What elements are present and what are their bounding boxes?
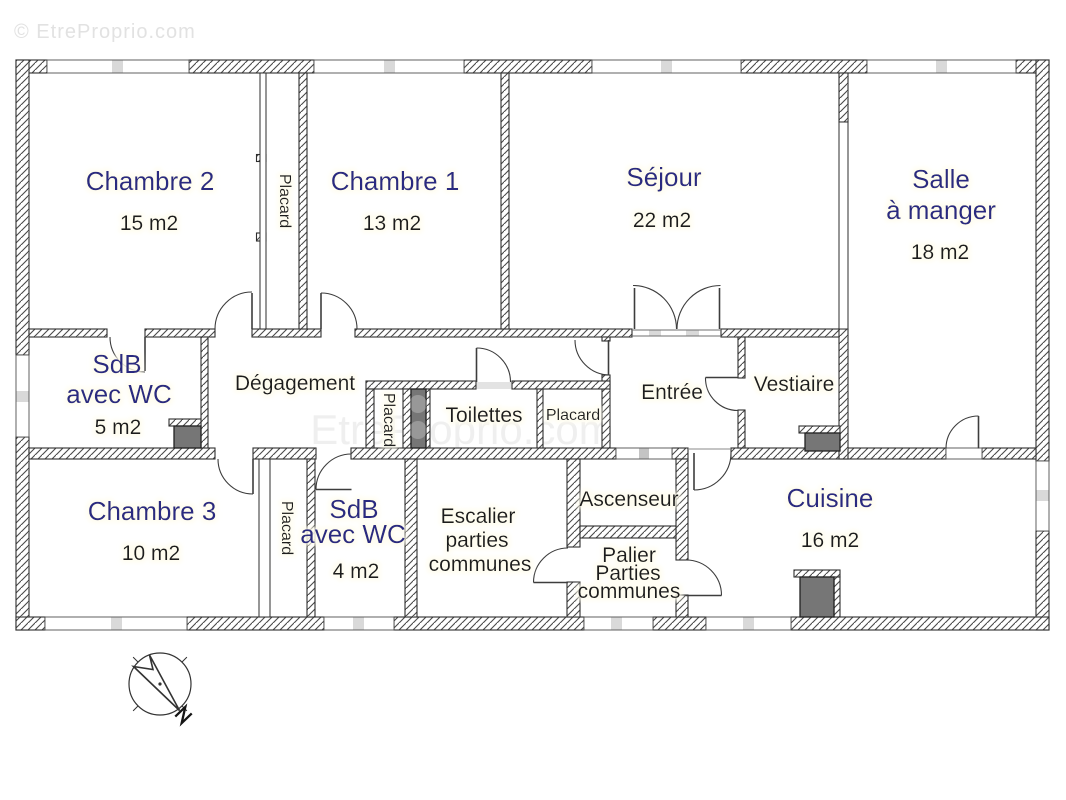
svg-text:4 m2: 4 m2 xyxy=(333,560,380,583)
svg-text:Placard: Placard xyxy=(276,174,293,228)
svg-text:avec WC: avec WC xyxy=(66,379,171,409)
svg-text:communes: communes xyxy=(578,580,681,603)
svg-text:Dégagement: Dégagement xyxy=(235,372,355,395)
svg-text:Toilettes: Toilettes xyxy=(445,404,522,427)
svg-text:parties: parties xyxy=(445,529,508,552)
svg-text:10 m2: 10 m2 xyxy=(122,542,180,565)
svg-text:Placard: Placard xyxy=(546,407,600,424)
svg-text:SdB: SdB xyxy=(92,349,141,379)
svg-text:22 m2: 22 m2 xyxy=(633,209,691,232)
svg-text:5 m2: 5 m2 xyxy=(95,416,142,439)
svg-text:18 m2: 18 m2 xyxy=(911,241,969,264)
svg-text:Cuisine: Cuisine xyxy=(787,483,874,513)
svg-text:avec WC: avec WC xyxy=(300,519,405,549)
svg-text:Placard: Placard xyxy=(380,393,397,447)
svg-text:Entrée: Entrée xyxy=(641,381,703,404)
svg-text:16 m2: 16 m2 xyxy=(801,529,859,552)
svg-text:à manger: à manger xyxy=(886,195,996,225)
svg-text:Ascenseur: Ascenseur xyxy=(579,488,678,511)
svg-text:communes: communes xyxy=(429,553,532,576)
svg-text:Chambre 3: Chambre 3 xyxy=(88,496,217,526)
svg-text:© EtreProprio.com: © EtreProprio.com xyxy=(14,21,196,43)
svg-text:Placard: Placard xyxy=(278,501,295,555)
svg-text:Séjour: Séjour xyxy=(626,162,701,192)
svg-text:15 m2: 15 m2 xyxy=(120,212,178,235)
svg-text:Chambre 2: Chambre 2 xyxy=(86,166,215,196)
svg-text:13 m2: 13 m2 xyxy=(363,212,421,235)
svg-text:Chambre 1: Chambre 1 xyxy=(331,166,460,196)
svg-text:Escalier: Escalier xyxy=(441,505,516,528)
svg-text:Salle: Salle xyxy=(912,164,970,194)
svg-text:Vestiaire: Vestiaire xyxy=(754,373,835,396)
